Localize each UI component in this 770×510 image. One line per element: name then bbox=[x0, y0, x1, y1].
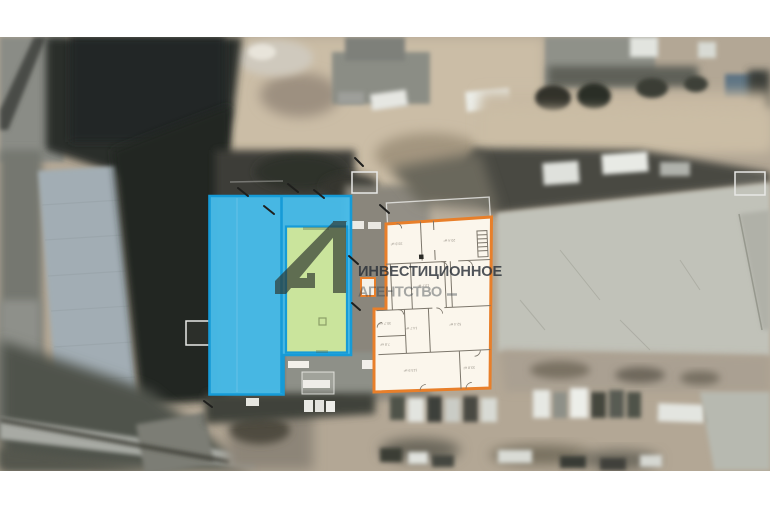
svg-text:113.9 м²: 113.9 м² bbox=[403, 368, 417, 373]
svg-text:30.7 м²: 30.7 м² bbox=[378, 321, 391, 326]
svg-text:7.8 м²: 7.8 м² bbox=[379, 342, 390, 346]
svg-text:ИНВЕСТИЦИОННОЕ: ИНВЕСТИЦИОННОЕ bbox=[358, 264, 503, 280]
svg-text:33.8 м²: 33.8 м² bbox=[390, 241, 403, 246]
svg-text:14.7 м²: 14.7 м² bbox=[405, 326, 418, 331]
svg-text:АГЕНТСТВО: АГЕНТСТВО bbox=[358, 285, 442, 301]
svg-text:52.4 м²: 52.4 м² bbox=[449, 322, 462, 327]
svg-text:33.8 м²: 33.8 м² bbox=[463, 365, 476, 370]
svg-text:20.4 м²: 20.4 м² bbox=[443, 238, 456, 243]
